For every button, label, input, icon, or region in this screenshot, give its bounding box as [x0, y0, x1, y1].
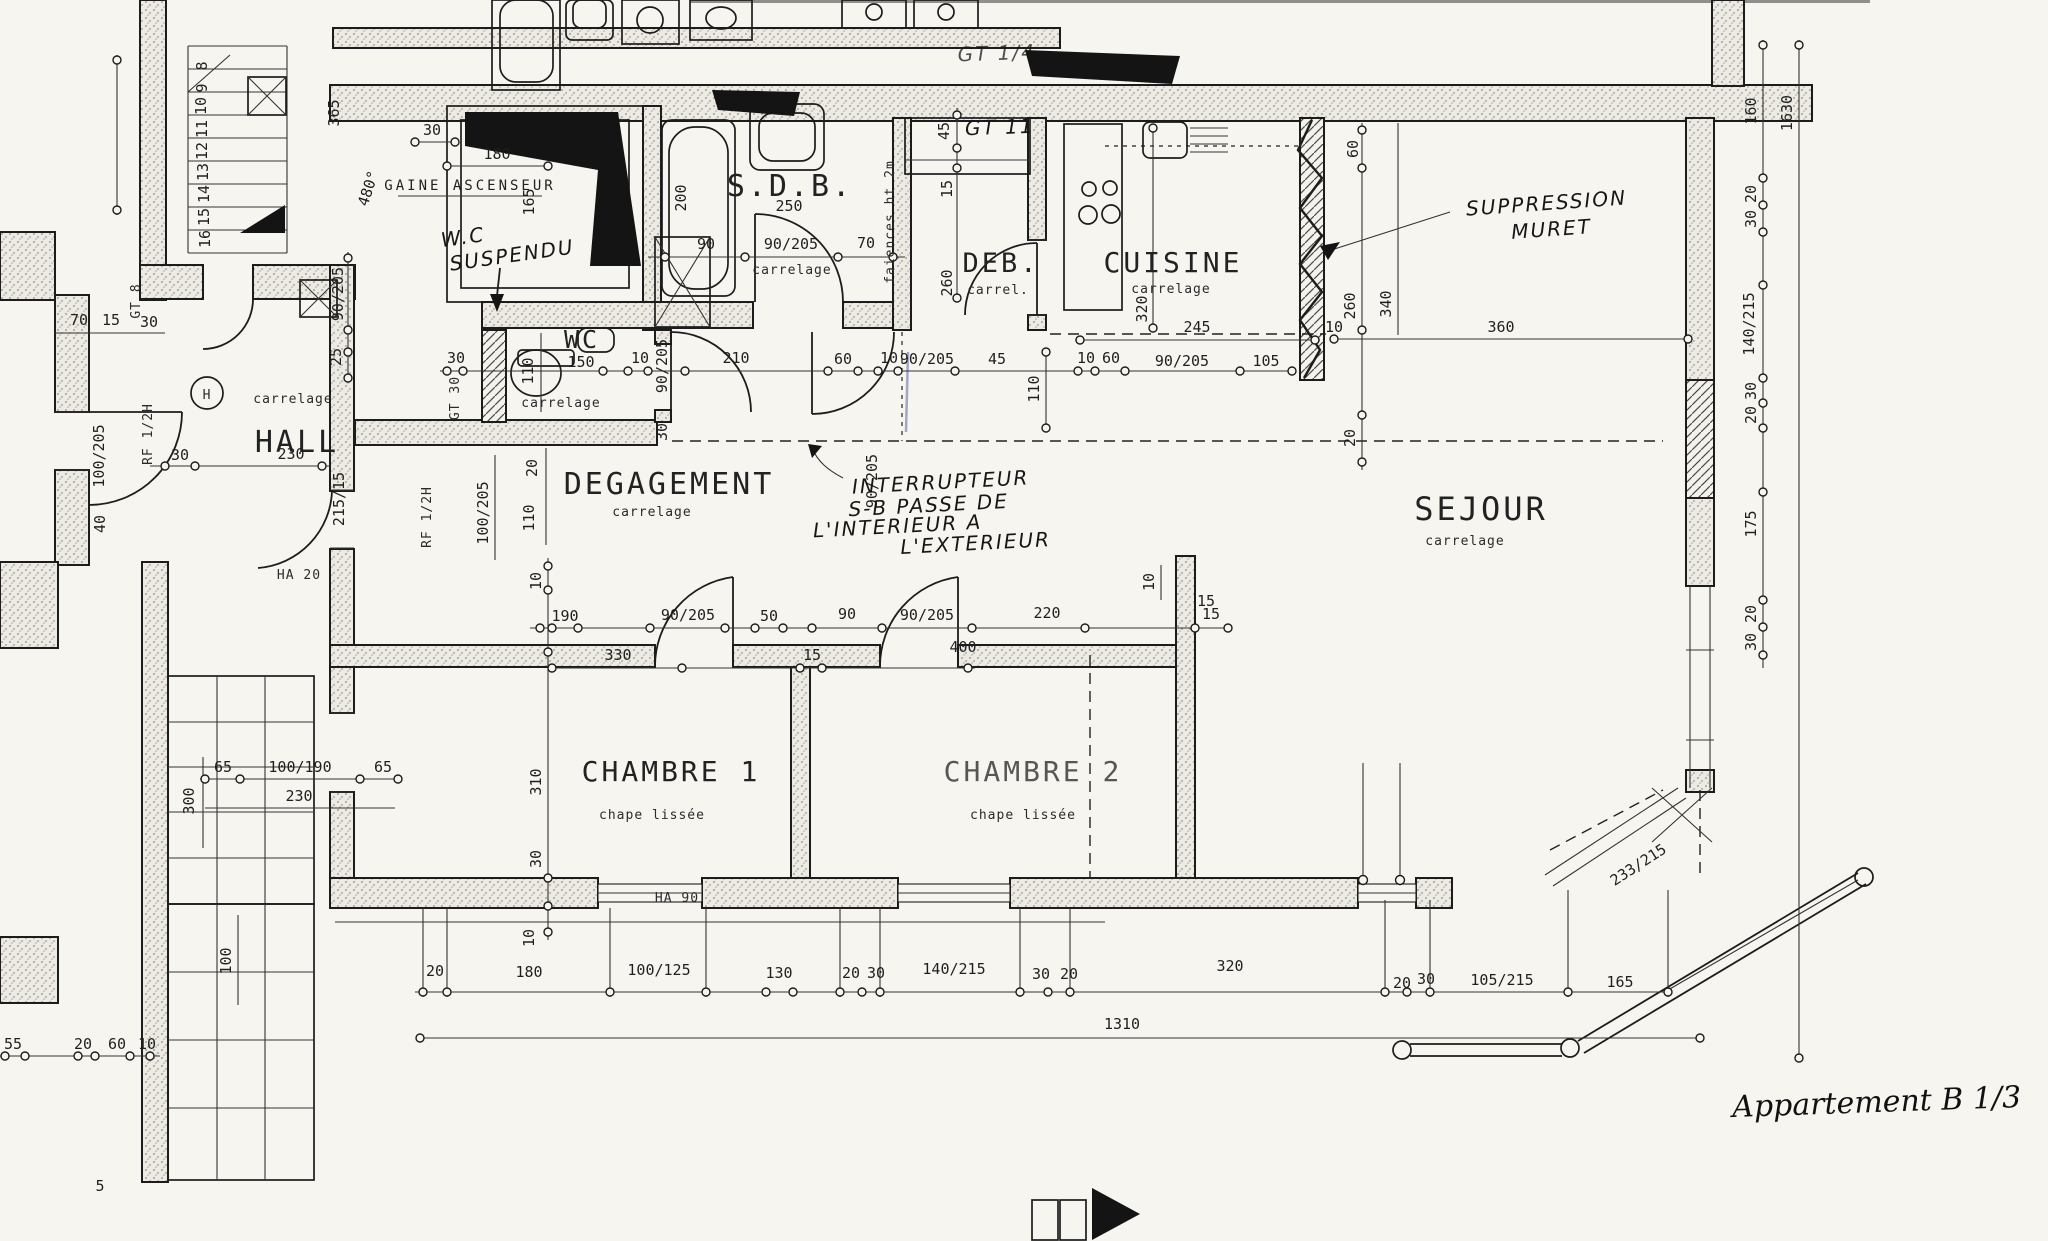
- dimension-tick: [574, 624, 582, 632]
- dimension-tick: [878, 624, 886, 632]
- dim-label: 30: [140, 313, 158, 331]
- dim-label: 360: [1487, 318, 1514, 336]
- dim-label: 230: [277, 445, 304, 463]
- dimension-tick: [548, 624, 556, 632]
- dimension-tick: [1081, 624, 1089, 632]
- dimension-tick: [1016, 988, 1024, 996]
- sub-label: chape lissée: [599, 808, 705, 823]
- dim-label: 100: [217, 947, 235, 974]
- dimension-tick: [1759, 399, 1767, 407]
- dimension-tick: [91, 1052, 99, 1060]
- dim-label: 180: [483, 145, 510, 163]
- dimension-tick: [1236, 367, 1244, 375]
- dimension-tick: [544, 162, 552, 170]
- dim-label: 180: [515, 963, 542, 981]
- dim-label: 90/205: [900, 606, 954, 624]
- dim-label: 20: [1742, 406, 1760, 424]
- dim-label: 20: [74, 1035, 92, 1053]
- dim-label: 320: [1216, 957, 1243, 975]
- sub-label: faiences ht 2m: [883, 160, 898, 284]
- sub-label: carrelage: [752, 263, 831, 278]
- dimension-tick: [1759, 424, 1767, 432]
- dimension-tick: [1149, 324, 1157, 332]
- dim-label: 30: [653, 423, 671, 441]
- dim-label: 90/205: [764, 235, 818, 253]
- dim-label: 165: [520, 188, 538, 215]
- dim-label: 110: [1025, 375, 1043, 402]
- dim-label: 1630: [1778, 95, 1796, 131]
- dim-label: 30: [1742, 382, 1760, 400]
- dimension-tick: [1, 1052, 9, 1060]
- dimension-tick: [968, 624, 976, 632]
- sub-label: carrelage: [1131, 282, 1210, 297]
- sub-label: carrelage: [1425, 534, 1504, 549]
- dimension-tick: [146, 1052, 154, 1060]
- dimension-tick: [789, 988, 797, 996]
- dimension-tick: [1044, 988, 1052, 996]
- dim-label: 320: [1133, 295, 1151, 322]
- sub-label: HA 20: [277, 568, 321, 583]
- dim-label: 480°: [354, 168, 382, 208]
- dimension-tick: [661, 253, 669, 261]
- dim-label: 15: [1202, 605, 1220, 623]
- dimension-tick: [599, 367, 607, 375]
- dim-label: 10: [520, 929, 538, 947]
- dimension-tick: [818, 664, 826, 672]
- dimension-tick: [21, 1052, 29, 1060]
- dim-label: 165: [1606, 973, 1633, 991]
- dimension-tick: [751, 624, 759, 632]
- dim-label: 245: [1183, 318, 1210, 336]
- dim-label: 90/205: [661, 606, 715, 624]
- dim-label: 16: [196, 230, 214, 248]
- dimension-tick: [1426, 988, 1434, 996]
- dim-label: 365: [325, 99, 343, 126]
- dim-label: 20: [1742, 185, 1760, 203]
- sub-label: HA 90: [655, 891, 699, 906]
- dim-label: 55: [4, 1035, 22, 1053]
- dim-label: 105/215: [1470, 971, 1533, 989]
- dimension-tick: [161, 462, 169, 470]
- dimension-tick: [1795, 41, 1803, 49]
- dim-label: 30: [423, 121, 441, 139]
- dim-label: 20: [1060, 965, 1078, 983]
- dimension-tick: [344, 374, 352, 382]
- dim-label: 110: [520, 504, 538, 531]
- dimension-tick: [1759, 174, 1767, 182]
- script-label: Appartement B 1/3: [1729, 1080, 2022, 1125]
- dim-label: 215/15: [330, 472, 348, 526]
- dim-label: 210: [722, 349, 749, 367]
- dim-label: 25: [327, 348, 345, 366]
- dimension-tick: [741, 253, 749, 261]
- dim-label: 60: [834, 350, 852, 368]
- hand-label: MURET: [1510, 214, 1592, 244]
- dim-label: 310: [527, 768, 545, 795]
- dim-label: 90: [838, 605, 856, 623]
- dim-label: 110: [519, 357, 537, 384]
- dimension-tick: [876, 988, 884, 996]
- dimension-tick: [721, 624, 729, 632]
- dim-label: 10: [880, 349, 898, 367]
- hand-label: GT 1/4: [957, 40, 1036, 67]
- dim-label: 140/215: [922, 960, 985, 978]
- dimension-tick: [1564, 988, 1572, 996]
- dim-label: 90/205: [1155, 352, 1209, 370]
- dim-label: 230: [285, 787, 312, 805]
- dim-label: 20: [426, 962, 444, 980]
- sub-label: carrelage: [612, 505, 691, 520]
- dim-label: 340: [1377, 290, 1395, 317]
- dimension-tick: [344, 254, 352, 262]
- dimension-tick: [1091, 367, 1099, 375]
- dim-label: 30: [1742, 633, 1760, 651]
- dimension-tick: [411, 138, 419, 146]
- room-label: CHAMBRE 1: [582, 755, 761, 788]
- dim-label: 160: [1742, 97, 1760, 124]
- dim-label: 15: [938, 180, 956, 198]
- dimension-tick: [953, 111, 961, 119]
- dimension-tick: [1696, 1034, 1704, 1042]
- dimension-tick: [858, 988, 866, 996]
- dimension-tick: [544, 902, 552, 910]
- dim-label: 30: [527, 850, 545, 868]
- dimension-tick: [1759, 623, 1767, 631]
- dim-label: 12: [193, 142, 211, 160]
- dim-label: 260: [938, 269, 956, 296]
- dim-label: 100/125: [627, 961, 690, 979]
- dim-label: 10: [138, 1035, 156, 1053]
- dim-label: 10: [192, 97, 210, 115]
- dimension-tick: [443, 367, 451, 375]
- dimension-tick: [824, 367, 832, 375]
- dimension-tick: [544, 928, 552, 936]
- sub-label: RF 1/2H: [141, 403, 156, 465]
- sub-label: GT 30: [448, 376, 463, 420]
- dim-label: 90/205: [900, 350, 954, 368]
- dim-label: 200: [672, 184, 690, 211]
- dim-label: 40: [91, 515, 109, 533]
- dimension-tick: [443, 988, 451, 996]
- dimension-tick: [1759, 228, 1767, 236]
- dimension-tick: [874, 367, 882, 375]
- dim-label: 65: [374, 758, 392, 776]
- dim-label: 140/215: [1740, 292, 1758, 355]
- dimension-tick: [678, 664, 686, 672]
- dim-label: 30: [867, 964, 885, 982]
- room-label: DEB.: [962, 248, 1039, 279]
- dim-label: 1310: [1104, 1015, 1140, 1033]
- sub-label: chape lissée: [970, 808, 1076, 823]
- dim-label: 90/205: [329, 267, 347, 321]
- dimension-tick: [834, 253, 842, 261]
- hand-label: SUPPRESSION: [1465, 185, 1628, 220]
- dim-label: 9: [193, 83, 211, 92]
- dimension-tick: [416, 1034, 424, 1042]
- dimension-tick: [1759, 201, 1767, 209]
- dimension-tick: [1358, 164, 1366, 172]
- dim-label: 11: [193, 120, 211, 138]
- dimension-tick: [74, 1052, 82, 1060]
- dim-label: 60: [1344, 140, 1362, 158]
- dimension-tick: [624, 367, 632, 375]
- dimension-tick: [1149, 124, 1157, 132]
- dimension-tick: [1074, 367, 1082, 375]
- dim-label: 15: [195, 208, 213, 226]
- dim-label: 8: [193, 61, 211, 70]
- dimension-tick: [681, 367, 689, 375]
- dimension-tick: [964, 664, 972, 672]
- dimension-tick: [762, 988, 770, 996]
- dimension-tick: [1358, 126, 1366, 134]
- dimension-tick: [1066, 988, 1074, 996]
- dim-label: 15: [803, 646, 821, 664]
- dim-label: 65: [214, 758, 232, 776]
- dim-label: 250: [775, 197, 802, 215]
- dimension-tick: [894, 367, 902, 375]
- dim-label: 260: [1341, 292, 1359, 319]
- hand-label: GT 11: [965, 114, 1035, 140]
- dim-label: 14: [195, 185, 213, 203]
- dimension-tick: [854, 367, 862, 375]
- dimension-tick: [1759, 488, 1767, 496]
- room-label: DEGAGEMENT: [564, 467, 775, 502]
- room-label: SEJOUR: [1414, 490, 1548, 528]
- dimension-tick: [126, 1052, 134, 1060]
- room-label: CUISINE: [1103, 246, 1242, 279]
- dimension-tick: [1759, 281, 1767, 289]
- dimension-tick: [544, 586, 552, 594]
- dimension-tick: [548, 664, 556, 672]
- room-label: WC: [564, 325, 600, 354]
- dimension-tick: [1330, 335, 1338, 343]
- dim-label: 60: [1102, 349, 1120, 367]
- dimension-tick: [1358, 326, 1366, 334]
- dim-label: 175: [1742, 510, 1760, 537]
- dimension-tick: [1121, 367, 1129, 375]
- sub-label: H: [203, 388, 212, 403]
- dim-label: 15: [102, 311, 120, 329]
- layer-script: Appartement B 1/3: [1729, 1080, 2022, 1125]
- dimension-tick: [318, 462, 326, 470]
- dimension-tick: [1381, 988, 1389, 996]
- dimension-tick: [953, 144, 961, 152]
- dim-label: 30: [1032, 965, 1050, 983]
- dimension-tick: [646, 624, 654, 632]
- sub-label: carrelage: [253, 392, 332, 407]
- dim-label: 90/205: [653, 339, 671, 393]
- dimension-tick: [1358, 411, 1366, 419]
- dimension-tick: [779, 624, 787, 632]
- dim-label: 150: [567, 353, 594, 371]
- dimension-tick: [1042, 348, 1050, 356]
- dimension-tick: [1076, 336, 1084, 344]
- sub-label: RF 1/2H: [420, 486, 435, 548]
- dim-label: 220: [1033, 604, 1060, 622]
- dimension-tick: [1759, 651, 1767, 659]
- floor-plan-scan: HALLDEGAGEMENTS.D.B.DEB.CUISINESEJOURCHA…: [0, 0, 2048, 1241]
- floor-plan-svg: HALLDEGAGEMENTS.D.B.DEB.CUISINESEJOURCHA…: [0, 0, 2048, 1241]
- dimension-tick: [1224, 624, 1232, 632]
- dimension-tick: [419, 988, 427, 996]
- dim-label: 70: [70, 311, 88, 329]
- dim-label: 20: [842, 964, 860, 982]
- sub-label: carrelage: [521, 396, 600, 411]
- dim-label: 100/205: [90, 424, 108, 487]
- layer-walls: [0, 0, 1812, 1182]
- dim-label: 30: [447, 349, 465, 367]
- dimension-tick: [1358, 458, 1366, 466]
- dim-label: 45: [935, 122, 953, 140]
- dim-label: 10: [1077, 349, 1095, 367]
- dimension-tick: [544, 874, 552, 882]
- sub-label: carrel.: [967, 283, 1029, 298]
- dimension-tick: [1795, 1054, 1803, 1062]
- dimension-tick: [1664, 988, 1672, 996]
- dim-label: 90: [697, 235, 715, 253]
- dimension-tick: [113, 206, 121, 214]
- dimension-tick: [394, 775, 402, 783]
- dim-label: 233/215: [1607, 840, 1670, 890]
- dim-label: 130: [765, 964, 792, 982]
- dimension-tick: [443, 162, 451, 170]
- dimension-tick: [459, 367, 467, 375]
- dim-label: 300: [180, 787, 198, 814]
- dimension-tick: [1759, 374, 1767, 382]
- dimension-tick: [1759, 596, 1767, 604]
- dimension-tick: [191, 462, 199, 470]
- dimension-tick: [606, 988, 614, 996]
- dim-label: 5: [95, 1177, 104, 1195]
- dimension-tick: [836, 988, 844, 996]
- dim-label: 100/190: [268, 758, 331, 776]
- dimension-tick: [1684, 335, 1692, 343]
- dim-label: 30: [171, 446, 189, 464]
- dim-label: 20: [1341, 429, 1359, 447]
- dimension-tick: [344, 326, 352, 334]
- dim-label: 50: [760, 607, 778, 625]
- dimension-tick: [644, 367, 652, 375]
- dimension-tick: [1288, 367, 1296, 375]
- dim-label: 70: [857, 234, 875, 252]
- dim-label: 60: [108, 1035, 126, 1053]
- dimension-tick: [113, 56, 121, 64]
- dim-label: 105: [1252, 352, 1279, 370]
- dimension-tick: [236, 775, 244, 783]
- dim-label: 400: [949, 638, 976, 656]
- dimension-tick: [544, 562, 552, 570]
- dimension-tick: [953, 164, 961, 172]
- dim-label: 10: [1140, 573, 1158, 591]
- dimension-tick: [1042, 424, 1050, 432]
- dimension-tick: [544, 648, 552, 656]
- room-label: CHAMBRE 2: [944, 755, 1123, 788]
- dim-label: 20: [1742, 605, 1760, 623]
- dim-label: 30: [1417, 970, 1435, 988]
- dim-label: 10: [631, 349, 649, 367]
- dimension-tick: [1759, 41, 1767, 49]
- dim-label: 100/205: [474, 481, 492, 544]
- dimension-tick: [344, 348, 352, 356]
- dim-label: 330: [604, 646, 631, 664]
- dim-label: 45: [988, 350, 1006, 368]
- dimension-tick: [451, 138, 459, 146]
- dimension-tick: [201, 775, 209, 783]
- dim-label: 10: [1325, 318, 1343, 336]
- dimension-tick: [951, 367, 959, 375]
- dimension-tick: [1191, 624, 1199, 632]
- dimension-tick: [796, 664, 804, 672]
- dim-label: 20: [523, 459, 541, 477]
- dimension-tick: [1311, 336, 1319, 344]
- dimension-tick: [536, 624, 544, 632]
- dimension-tick: [702, 988, 710, 996]
- dim-label: 20: [1393, 974, 1411, 992]
- dimension-tick: [808, 624, 816, 632]
- dim-label: 13: [194, 163, 212, 181]
- dimension-tick: [356, 775, 364, 783]
- dim-label: 190: [551, 607, 578, 625]
- dim-label: 10: [527, 572, 545, 590]
- dim-label: 30: [1742, 210, 1760, 228]
